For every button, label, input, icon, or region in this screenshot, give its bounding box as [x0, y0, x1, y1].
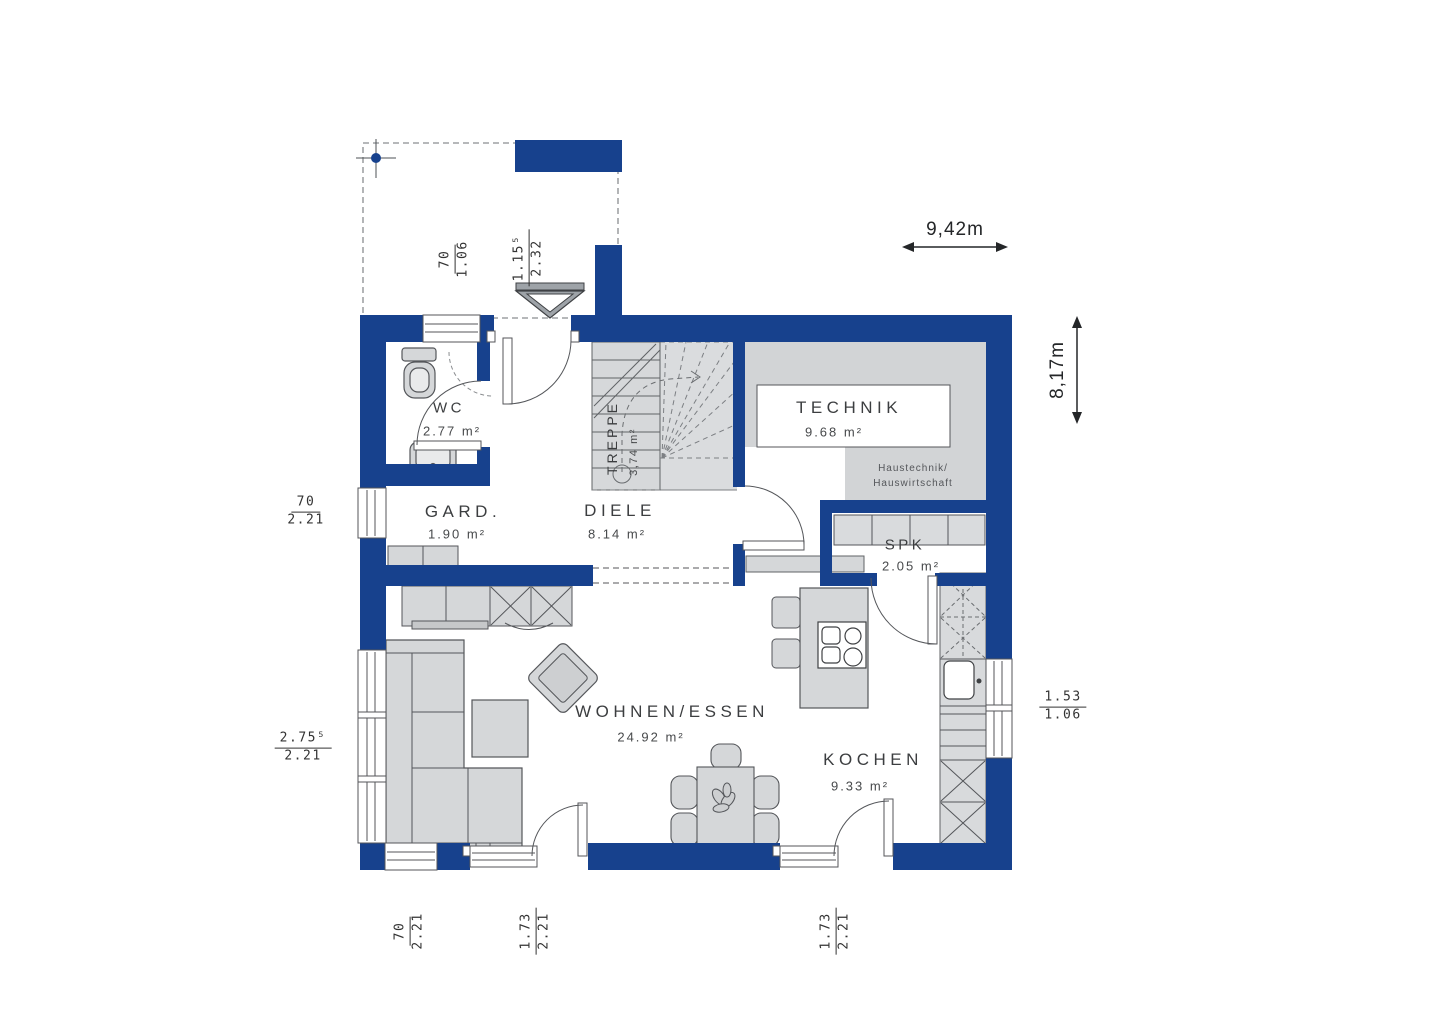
- overall-height-label: 8,17m: [1047, 341, 1069, 399]
- dim-entry-door: 1.15⁵2.32: [512, 230, 547, 287]
- room-area-wohnen: 24.92 m²: [617, 730, 684, 745]
- room-area-diele: 8.14 m²: [588, 527, 646, 542]
- entry-door: [487, 331, 579, 404]
- technik-note: Haustechnik/ Hauswirtschaft: [873, 461, 953, 491]
- room-area-gard: 1.90 m²: [428, 527, 486, 542]
- dining-set: [671, 744, 779, 850]
- living-terrace-sidelite: [470, 846, 537, 867]
- gard-window: [358, 488, 386, 538]
- room-label-spk: SPK: [885, 537, 926, 554]
- room-area-wc: 2.77 m²: [423, 424, 481, 439]
- room-label-kochen: KOCHEN: [823, 750, 923, 770]
- dim-wc-window: 701.06: [438, 235, 473, 282]
- room-area-technik: 9.68 m²: [805, 425, 863, 440]
- dim-gard-window: 702.21: [282, 495, 329, 530]
- spk-door: [871, 576, 937, 644]
- datum-marker: [356, 139, 396, 178]
- room-label-wc: WC: [433, 400, 465, 417]
- sideboard-tv: [402, 586, 572, 630]
- floor-boundary-dashed: [593, 568, 737, 583]
- overall-width-label: 9,42m: [926, 219, 984, 241]
- floor-plan-svg: [0, 0, 1440, 1019]
- gard-bench: [388, 546, 458, 566]
- entrance-marker: [516, 283, 584, 318]
- dim-kitchen-window: 1.531.06: [1039, 690, 1086, 725]
- room-label-wohnen: WOHNEN/ESSEN: [575, 702, 769, 722]
- room-area-kochen: 9.33 m²: [831, 779, 889, 794]
- kitchen-window: [986, 659, 1012, 758]
- room-label-diele: DIELE: [584, 501, 656, 521]
- room-label-gard: GARD.: [425, 502, 501, 522]
- dim-living-terrace-door: 1.732.21: [519, 907, 554, 954]
- dim-kitchen-terrace-door: 1.732.21: [819, 907, 854, 954]
- living-window: [358, 650, 386, 843]
- technik-note-line1: Haustechnik/: [873, 461, 953, 476]
- room-area-spk: 2.05 m²: [882, 559, 940, 574]
- kitchen-terrace-sidelite: [780, 846, 838, 867]
- kitchen-counter: [940, 573, 986, 845]
- kitchen-island: [772, 588, 868, 708]
- technik-note-line2: Hauswirtschaft: [873, 476, 953, 491]
- wc-toilet: [402, 348, 436, 398]
- room-label-treppe: TREPPE: [604, 401, 620, 475]
- room-label-technik: TECHNIK: [796, 398, 902, 418]
- bottom-small-window: [385, 843, 437, 870]
- wc-window: [423, 315, 480, 342]
- counter-niche: [746, 556, 864, 572]
- room-area-treppe: 3,74 m²: [628, 428, 640, 476]
- coffee-table: [472, 700, 528, 757]
- dim-bottom-window: 702.21: [393, 907, 428, 954]
- floor-plan: WC 2.77 m² GARD. 1.90 m² DIELE 8.14 m² T…: [0, 0, 1440, 1019]
- dim-living-window: 2.75⁵2.21: [275, 731, 332, 766]
